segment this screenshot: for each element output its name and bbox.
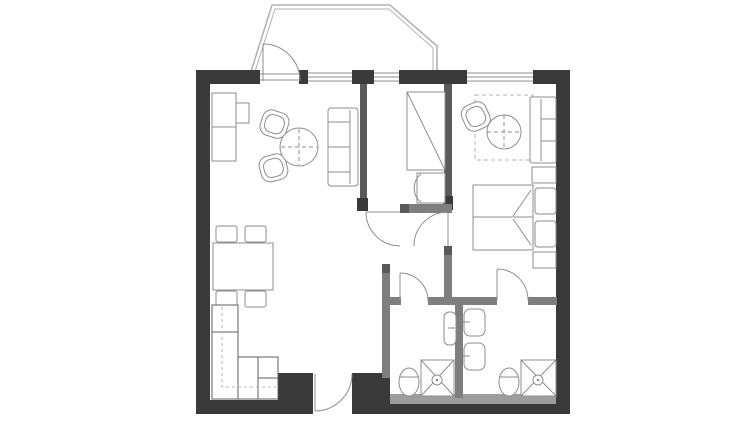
pillow-1 xyxy=(535,188,556,214)
bath-north-wall-west xyxy=(389,297,401,305)
right-wall xyxy=(556,70,570,414)
loveseat xyxy=(530,97,556,163)
toilet xyxy=(499,368,519,396)
floor-plan-page xyxy=(0,0,740,425)
balcony-door-swing xyxy=(263,44,300,81)
bottom-wall-left xyxy=(196,400,313,414)
bathroom-1-fixtures xyxy=(399,312,456,396)
living-room-furniture xyxy=(212,93,358,399)
corridor-west-wall xyxy=(382,264,390,378)
corridor-east-wall-cap xyxy=(444,246,452,255)
bath-north-wall-east xyxy=(528,297,557,305)
entry-left-step xyxy=(278,373,313,400)
desk-chair xyxy=(236,103,249,123)
entry-right-block xyxy=(352,373,390,414)
top-wall-mullion xyxy=(299,70,308,84)
hall-south-wall-cap xyxy=(400,204,409,213)
closet-area xyxy=(407,92,445,203)
living-hall-wall-cap xyxy=(357,198,368,211)
dining-table xyxy=(213,243,273,290)
toilet xyxy=(399,368,419,396)
bedroom-door-swing xyxy=(414,212,448,246)
living-hall-wall xyxy=(360,84,367,200)
closet-cabinet xyxy=(417,173,445,203)
entry-door-swing xyxy=(315,374,352,411)
dining-chair-4 xyxy=(245,291,266,307)
bottom-wall-right xyxy=(387,404,570,414)
left-wall xyxy=(196,70,210,414)
dining-chair-2 xyxy=(245,226,266,242)
bathroom-2-fixtures xyxy=(463,309,556,396)
dining-chair-1 xyxy=(216,226,237,242)
floor-plan xyxy=(0,0,740,425)
pillow-2 xyxy=(535,221,556,247)
top-wall-mid-2 xyxy=(399,70,467,84)
bathroom-1-door-swing xyxy=(400,273,428,301)
corridor-west-wall-cap xyxy=(382,264,390,273)
shower-drain-dot xyxy=(537,379,540,382)
nightstand-south xyxy=(533,252,556,268)
top-wall-mid-1 xyxy=(352,70,374,84)
hall-door-swing xyxy=(366,212,400,246)
bathroom-2-door-swing xyxy=(497,269,528,300)
nightstand-north xyxy=(532,167,556,183)
bedroom-furniture xyxy=(458,95,556,268)
bath-divider-wall xyxy=(455,297,463,398)
shower-drain-dot xyxy=(436,379,439,382)
